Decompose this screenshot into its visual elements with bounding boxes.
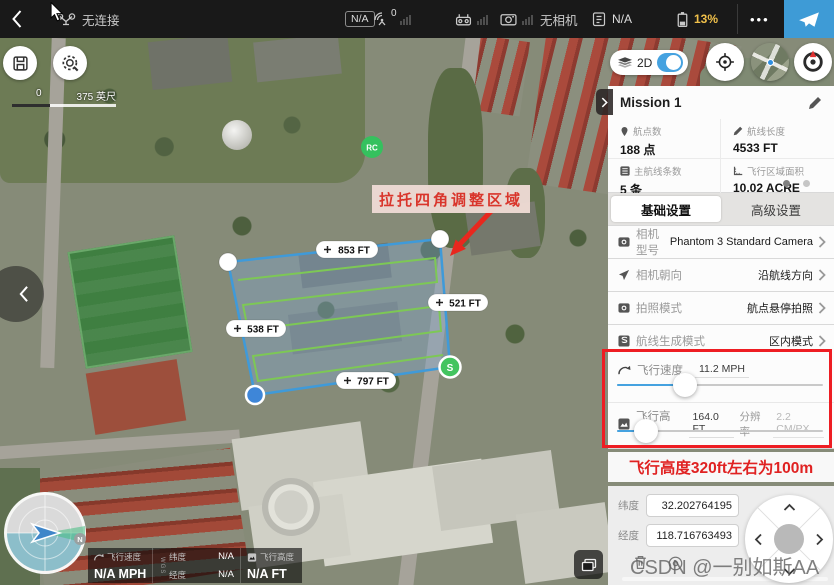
media-gallery-button[interactable]	[574, 550, 603, 579]
setting-camera-model[interactable]: 相机型号 Phantom 3 Standard Camera	[608, 226, 834, 258]
stat-route-length: 航线长度 4533 FT	[721, 119, 834, 159]
save-mission-button[interactable]	[3, 46, 37, 80]
camera-signal-bars	[522, 0, 533, 38]
mission-stats: 航点数 188 点 航线长度 4533 FT 主航线条数 5 条 飞行区域面积 …	[608, 119, 834, 192]
crosshair-icon	[715, 52, 735, 72]
status-bar: 无连接 N/A 0 无相机 N/A 13% •••	[0, 0, 834, 38]
edit-mission-button[interactable]	[808, 96, 822, 110]
tab-basic-settings[interactable]: 基础设置	[611, 196, 721, 222]
telemetry-lng-value: N/A	[218, 569, 234, 581]
battery-icon	[676, 0, 689, 38]
save-icon	[12, 55, 29, 72]
mouse-cursor	[50, 2, 64, 22]
chevron-right-icon	[818, 269, 826, 281]
camera-status-label: 无相机	[540, 0, 578, 38]
map-scale-bar: 0375 英尺	[6, 88, 116, 107]
nudge-left-button[interactable]	[754, 533, 762, 546]
map-mode-label: 2D	[637, 56, 652, 70]
rc-location-marker: RC	[361, 136, 383, 158]
altitude-slider-track[interactable]	[617, 430, 823, 432]
nudge-right-button[interactable]	[816, 533, 824, 546]
annotation-drag-corners: 拉托四角调整区域	[372, 185, 530, 213]
telemetry-speed-value: N/A MPH	[94, 567, 146, 581]
area-ruler-icon	[733, 166, 743, 176]
resolution-value: 2.2 CM/PX	[773, 411, 824, 438]
satellite-icon	[373, 0, 389, 38]
mission-title: Mission 1	[620, 95, 808, 110]
speed-icon	[618, 365, 631, 376]
more-menu-button[interactable]: •••	[750, 0, 770, 38]
setting-photo-mode[interactable]: 拍照模式 航点悬停拍照	[608, 292, 834, 324]
mission-settings-button[interactable]	[53, 46, 87, 80]
compass-needle-icon	[801, 50, 825, 74]
longitude-label: 经度	[618, 528, 646, 543]
nudge-up-button[interactable]	[783, 503, 796, 511]
setting-route-generation-mode[interactable]: 航线生成模式 区内模式	[608, 325, 834, 357]
mission-header: Mission 1	[608, 86, 834, 119]
svg-text:521 FT: 521 FT	[449, 299, 481, 310]
watermark: CSDN @一别如斯AA	[630, 551, 819, 580]
altitude-slider-row: 飞行高度 164.0 FT 分辨率 2.2 CM/PX	[608, 402, 834, 447]
stats-pagination-dots	[783, 180, 810, 187]
send-arrow-icon	[618, 269, 630, 281]
collapse-panel-tab[interactable]	[596, 89, 613, 115]
telemetry-lng-label: 经度	[169, 569, 186, 581]
rc-signal-bars	[477, 0, 488, 38]
longitude-input[interactable]	[646, 524, 739, 547]
chevron-right-icon	[818, 335, 826, 347]
takeoff-plane-icon	[798, 10, 820, 28]
telemetry-lat-label: 纬度	[169, 551, 186, 563]
corner-handle-top-right[interactable]	[431, 230, 449, 248]
telemetry-alt-value: N/A FT	[247, 567, 296, 581]
minimap-button[interactable]	[751, 43, 789, 81]
mission-planner-app: S 853 FT 521 FT 538 FT 797 FT	[0, 0, 834, 585]
camera-icon	[500, 0, 517, 38]
minimap-position-dot	[767, 59, 774, 66]
wgs-label: WGS	[159, 557, 165, 574]
flight-parameter-sliders: 飞行速度 11.2 MPH 飞行高度 164.0 FT 分辨率 2.2 CM/P…	[608, 357, 834, 448]
camera-square-icon	[618, 302, 630, 314]
speed-slider-knob[interactable]	[673, 373, 697, 397]
telemetry-speed-label: 飞行速度	[107, 551, 141, 563]
nudge-center-button[interactable]	[774, 524, 804, 554]
chevron-left-icon	[18, 285, 29, 303]
corner-handle-bottom-left[interactable]	[246, 386, 264, 404]
svg-text:853 FT: 853 FT	[338, 246, 370, 257]
photos-stack-icon	[581, 558, 597, 572]
telemetry-alt-label: 飞行高度	[260, 551, 294, 563]
remote-controller-icon	[455, 0, 472, 38]
altitude-icon	[247, 553, 257, 562]
chevron-left-icon	[10, 9, 23, 29]
connection-status-label: 无连接	[82, 10, 120, 29]
telemetry-lat-value: N/A	[218, 551, 234, 563]
speed-slider-row: 飞行速度 11.2 MPH	[608, 357, 834, 402]
map-2d-toggle[interactable]	[657, 53, 683, 72]
speed-icon	[94, 553, 104, 562]
altitude-icon	[618, 418, 630, 430]
settings-tabs: 基础设置 高级设置	[608, 193, 834, 225]
edge-length-label-bottom: 797 FT	[336, 372, 396, 389]
waypoint-pin-icon	[620, 126, 629, 137]
flight-mode-value: N/A	[612, 0, 632, 38]
stat-waypoints: 航点数 188 点	[608, 119, 721, 159]
start-marker-label: S	[447, 363, 454, 374]
altitude-value-field[interactable]: 164.0 FT	[689, 411, 734, 438]
resolution-label: 分辨率	[740, 409, 768, 439]
settings-list: 相机型号 Phantom 3 Standard Camera 相机朝向 沿航线方…	[608, 226, 834, 357]
edge-length-label-right: 521 FT	[428, 294, 488, 311]
compass-button[interactable]	[794, 43, 832, 81]
annotation-altitude-note: 飞行高度320ft左右为100m	[608, 452, 834, 482]
latitude-input[interactable]	[646, 494, 739, 517]
svg-text:538 FT: 538 FT	[247, 325, 279, 336]
mission-polygon[interactable]	[228, 239, 450, 395]
altitude-slider-knob[interactable]	[634, 419, 658, 443]
chevron-right-icon	[601, 97, 608, 108]
scale-start: 0	[36, 88, 42, 103]
scale-end: 375 英尺	[77, 88, 116, 103]
speed-slider-track[interactable]	[617, 384, 823, 386]
telemetry-bar: 飞行速度 N/A MPH WGS 纬度N/A 经度N/A 飞行高度 N/A FT	[88, 548, 302, 583]
takeoff-button[interactable]	[784, 0, 834, 38]
tab-advanced-settings[interactable]: 高级设置	[721, 196, 831, 222]
serpentine-icon	[620, 166, 630, 176]
battery-percent: 13%	[694, 0, 718, 38]
gear-icon	[61, 54, 80, 73]
north-marker: N	[77, 535, 82, 544]
setting-camera-heading[interactable]: 相机朝向 沿航线方向	[608, 259, 834, 291]
latitude-label: 纬度	[618, 498, 646, 513]
gps-signal-bars	[400, 0, 411, 38]
speed-value-field[interactable]: 11.2 MPH	[695, 363, 749, 378]
back-button[interactable]	[10, 0, 23, 38]
chevron-right-icon	[818, 302, 826, 314]
topbar-divider	[737, 4, 738, 34]
locate-button[interactable]	[706, 43, 744, 81]
route-length-icon	[733, 126, 743, 136]
map-mode-pill: 2D	[610, 50, 688, 75]
corner-handle-top-left[interactable]	[219, 253, 237, 271]
aircraft-connection-status: 无连接	[56, 0, 120, 38]
gps-mode-badge: N/A	[345, 0, 375, 38]
layers-icon	[618, 57, 632, 68]
s-route-icon	[618, 335, 630, 347]
attitude-indicator: N	[3, 491, 87, 575]
chevron-right-icon	[818, 236, 826, 248]
flight-mode-icon	[592, 0, 606, 38]
satellite-count: 0	[391, 0, 397, 32]
edge-length-label-top: 853 FT	[316, 241, 378, 258]
edge-length-label-left: 538 FT	[226, 320, 286, 337]
camera-square-icon	[618, 236, 630, 248]
svg-text:RC: RC	[366, 144, 378, 153]
svg-text:797 FT: 797 FT	[357, 377, 389, 388]
